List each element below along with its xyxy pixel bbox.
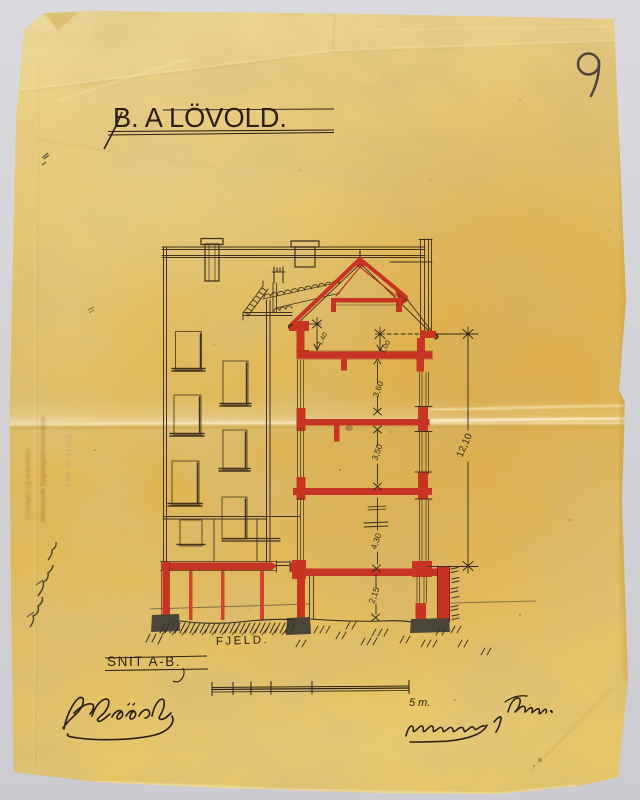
svg-text:5 m.: 5 m.: [409, 697, 430, 709]
svg-text:Vedtages og anbefales: Vedtages og anbefales: [25, 448, 32, 520]
svg-text:FJELD.: FJELD.: [216, 634, 270, 648]
svg-text:B. A LÖVOLD.: B. A LÖVOLD.: [113, 102, 287, 133]
svg-text:J.No. 80 217/10: J.No. 80 217/10: [63, 434, 74, 487]
svg-text:Aalesunds bygningskommission.: Aalesunds bygningskommission.: [38, 414, 47, 523]
